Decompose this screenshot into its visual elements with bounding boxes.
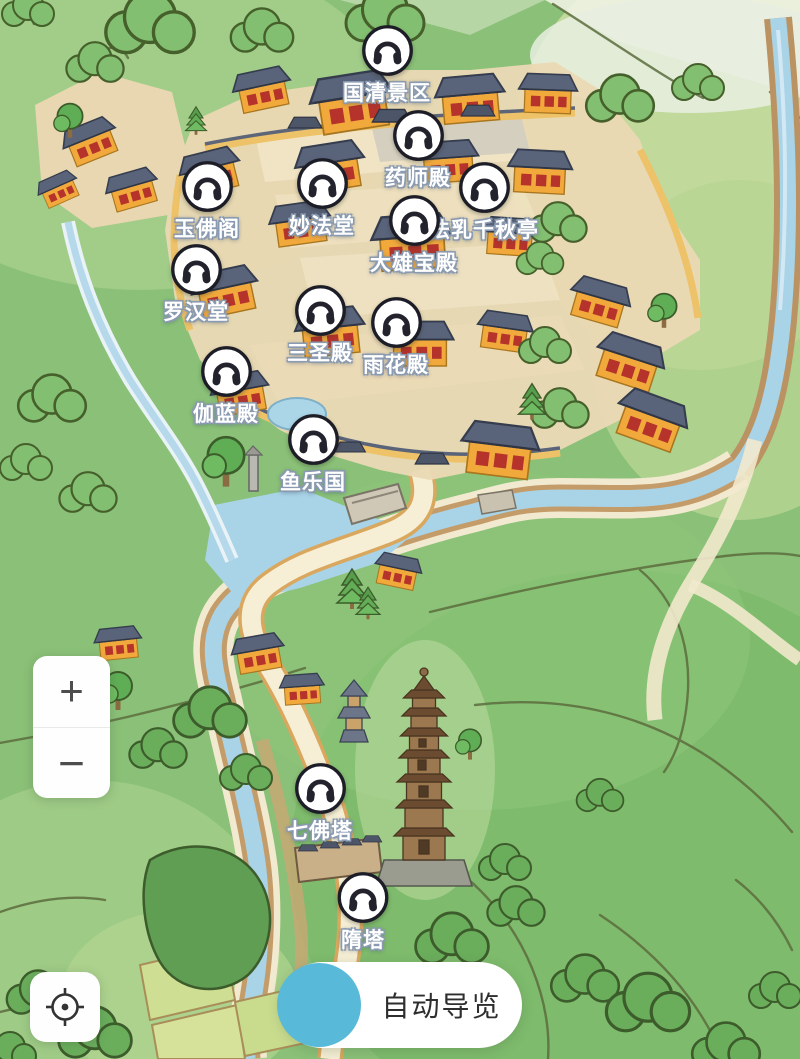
poi-marker-luohan-hall[interactable]: 罗汉堂 [163, 243, 229, 324]
poi-label: 伽蓝殿 [193, 403, 259, 426]
poi-label: 玉佛阁 [174, 218, 240, 241]
map-app-screen: 国清景区 药师殿 玉佛阁 [0, 0, 800, 1059]
poi-label: 妙法堂 [289, 215, 355, 238]
audio-guide-headphone-icon[interactable] [170, 243, 223, 296]
zoom-in-button[interactable]: + [33, 656, 110, 727]
poi-marker-yule-guo[interactable]: 鱼乐国 [280, 413, 346, 494]
locate-me-button[interactable] [30, 972, 100, 1042]
audio-guide-headphone-icon[interactable] [296, 157, 349, 210]
zoom-control: + − [33, 656, 110, 798]
poi-marker-sansheng-hall[interactable]: 三圣殿 [287, 284, 353, 365]
poi-marker-guoqing-scenic-area[interactable]: 国清景区 [343, 24, 431, 105]
audio-guide-headphone-icon[interactable] [287, 413, 340, 466]
poi-marker-yufo-pavilion[interactable]: 玉佛阁 [174, 160, 240, 241]
auto-guide-label: 自动导览 [367, 962, 516, 1048]
crosshair-icon [44, 986, 86, 1028]
audio-guide-headphone-icon[interactable] [294, 284, 347, 337]
audio-guide-headphone-icon[interactable] [388, 194, 441, 247]
poi-label: 国清景区 [343, 82, 431, 105]
auto-guide-button[interactable]: 自动导览 [279, 962, 522, 1048]
poi-label: 鱼乐国 [280, 471, 346, 494]
audio-guide-headphone-icon[interactable] [361, 24, 414, 77]
poi-label: 隋塔 [341, 929, 385, 952]
poi-marker-miaofa-hall[interactable]: 妙法堂 [289, 157, 355, 238]
audio-guide-headphone-icon[interactable] [294, 762, 347, 815]
poi-label: 罗汉堂 [163, 301, 229, 324]
poi-marker-yuhua-hall[interactable]: 雨花殿 [363, 296, 429, 377]
audio-guide-headphone-icon[interactable] [200, 345, 253, 398]
poi-label: 大雄宝殿 [370, 252, 458, 275]
poi-marker-qielan-hall[interactable]: 伽蓝殿 [193, 345, 259, 426]
zoom-out-button[interactable]: − [33, 727, 110, 799]
audio-guide-headphone-icon[interactable] [337, 871, 390, 924]
audio-guide-headphone-icon[interactable] [458, 161, 511, 214]
poi-label: 七佛塔 [287, 820, 353, 843]
audio-guide-headphone-icon[interactable] [370, 296, 423, 349]
poi-marker-qifo-pagoda[interactable]: 七佛塔 [287, 762, 353, 843]
auto-guide-avatar-circle [277, 963, 361, 1047]
poi-marker-sui-pagoda[interactable]: 隋塔 [337, 871, 390, 952]
poi-layer: 国清景区 药师殿 玉佛阁 [0, 0, 800, 1059]
audio-guide-headphone-icon[interactable] [181, 160, 234, 213]
audio-guide-headphone-icon[interactable] [392, 109, 445, 162]
poi-label: 雨花殿 [363, 354, 429, 377]
poi-label: 三圣殿 [287, 342, 353, 365]
poi-marker-daxiongbao-hall[interactable]: 大雄宝殿 [370, 194, 458, 275]
